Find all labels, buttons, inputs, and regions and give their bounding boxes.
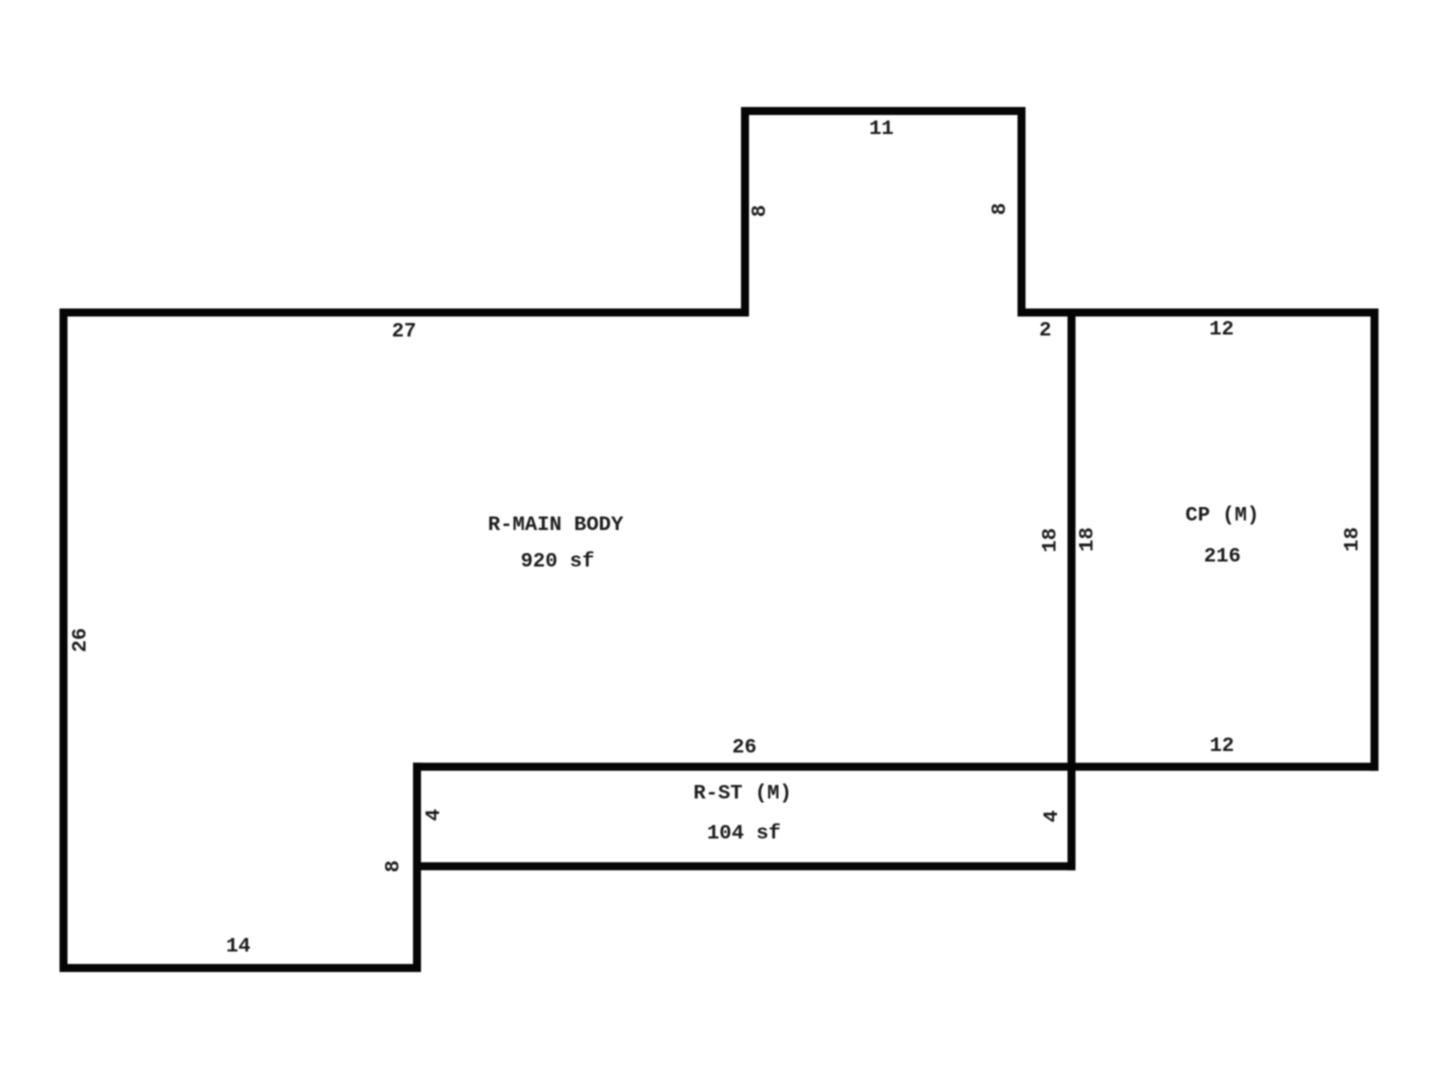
svg-text:216: 216 bbox=[1204, 546, 1241, 569]
svg-text:18: 18 bbox=[1076, 527, 1099, 552]
svg-text:R-ST (M): R-ST (M) bbox=[693, 782, 791, 805]
svg-text:R-MAIN BODY: R-MAIN BODY bbox=[488, 514, 624, 537]
svg-text:104 sf: 104 sf bbox=[707, 823, 781, 846]
svg-text:2: 2 bbox=[1039, 320, 1051, 343]
svg-text:CP (M): CP (M) bbox=[1185, 504, 1259, 527]
svg-text:27: 27 bbox=[392, 321, 417, 344]
svg-text:920 sf: 920 sf bbox=[521, 551, 595, 574]
svg-text:26: 26 bbox=[732, 736, 757, 759]
svg-text:14: 14 bbox=[226, 936, 251, 959]
svg-text:4: 4 bbox=[423, 809, 446, 821]
svg-text:12: 12 bbox=[1210, 735, 1235, 758]
svg-text:11: 11 bbox=[869, 118, 894, 141]
svg-text:8: 8 bbox=[383, 860, 406, 872]
svg-text:18: 18 bbox=[1039, 528, 1062, 553]
svg-text:12: 12 bbox=[1209, 319, 1234, 342]
svg-text:18: 18 bbox=[1342, 527, 1365, 552]
svg-text:8: 8 bbox=[749, 205, 772, 217]
svg-text:8: 8 bbox=[989, 203, 1012, 215]
svg-text:26: 26 bbox=[70, 628, 93, 653]
svg-text:4: 4 bbox=[1041, 810, 1064, 822]
